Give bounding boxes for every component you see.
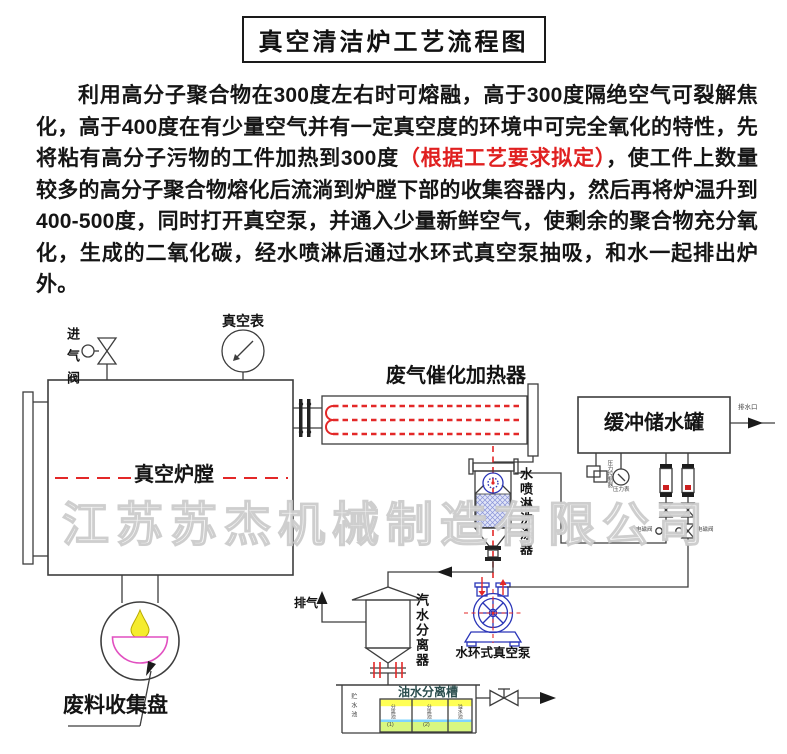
furnace-chamber-label: 真空炉膛 bbox=[131, 464, 217, 487]
spray-washer-icon bbox=[469, 459, 518, 561]
valve-right-label: 电磁阀 bbox=[697, 527, 714, 533]
flow-meter-2-icon bbox=[676, 453, 694, 538]
pool-2-num: (2) bbox=[423, 722, 430, 728]
valve-left-label: 电磁阀 bbox=[636, 527, 653, 533]
intro-text-red: （根据工艺要求拟定） bbox=[399, 147, 606, 170]
page-title: 真空清洁炉工艺流程图 bbox=[242, 16, 546, 63]
inlet-valve-label: 进气阀 bbox=[64, 327, 79, 393]
intro-paragraph: 利用高分子聚合物在300度左右时可熔融，高于300度隔绝空气可裂解焦化，高于40… bbox=[36, 80, 758, 301]
flow-meter-1-icon bbox=[656, 453, 672, 534]
pool-sep1-label: 分离池 bbox=[389, 704, 395, 719]
inlet-valve-icon bbox=[82, 338, 116, 380]
page: 真空清洁炉工艺流程图 利用高分子聚合物在300度左右时可熔融，高于300度隔绝空… bbox=[0, 0, 787, 754]
pressure-controller-icon bbox=[587, 453, 607, 482]
title-wrap: 真空清洁炉工艺流程图 bbox=[0, 16, 787, 63]
exhaust-label: 排气 bbox=[294, 597, 318, 611]
tank-outlet-label: 排水口 bbox=[738, 404, 758, 411]
buffer-tank-label: 缓冲储水罐 bbox=[578, 412, 730, 435]
pool-1-num: (1) bbox=[387, 722, 394, 728]
catalytic-heater-label: 废气催化加热器 bbox=[386, 365, 526, 388]
pool-sep2-label: 分离池 bbox=[425, 704, 431, 719]
exhaust-line bbox=[317, 591, 367, 622]
pressure-gauge-label: 压力表 bbox=[613, 487, 630, 493]
vacuum-pump-label: 水环式真空泵 bbox=[451, 646, 535, 660]
pressure-gauge-icon bbox=[613, 453, 629, 485]
vacuum-gauge-label: 真空表 bbox=[222, 313, 264, 329]
pressure-controller-label: 压力控制器 bbox=[606, 460, 612, 488]
steam-water-separator-label: 汽水分离器 bbox=[413, 593, 428, 668]
oil-water-tank-label: 油水分离槽 bbox=[398, 686, 458, 700]
vacuum-gauge-icon bbox=[222, 330, 264, 380]
heater-washer-pipe bbox=[493, 456, 533, 462]
spray-washer-label: 水喷淋洗涤器 bbox=[517, 467, 532, 557]
pool-overflow-label: 溢水池 bbox=[456, 704, 462, 719]
pool-storage-label: 贮水池 bbox=[349, 693, 356, 720]
furnace-heater-flange bbox=[293, 399, 322, 437]
pump-water-line bbox=[507, 538, 688, 587]
waste-tray-label: 废料收集盘 bbox=[63, 694, 168, 718]
catalytic-heater-icon bbox=[322, 384, 538, 456]
